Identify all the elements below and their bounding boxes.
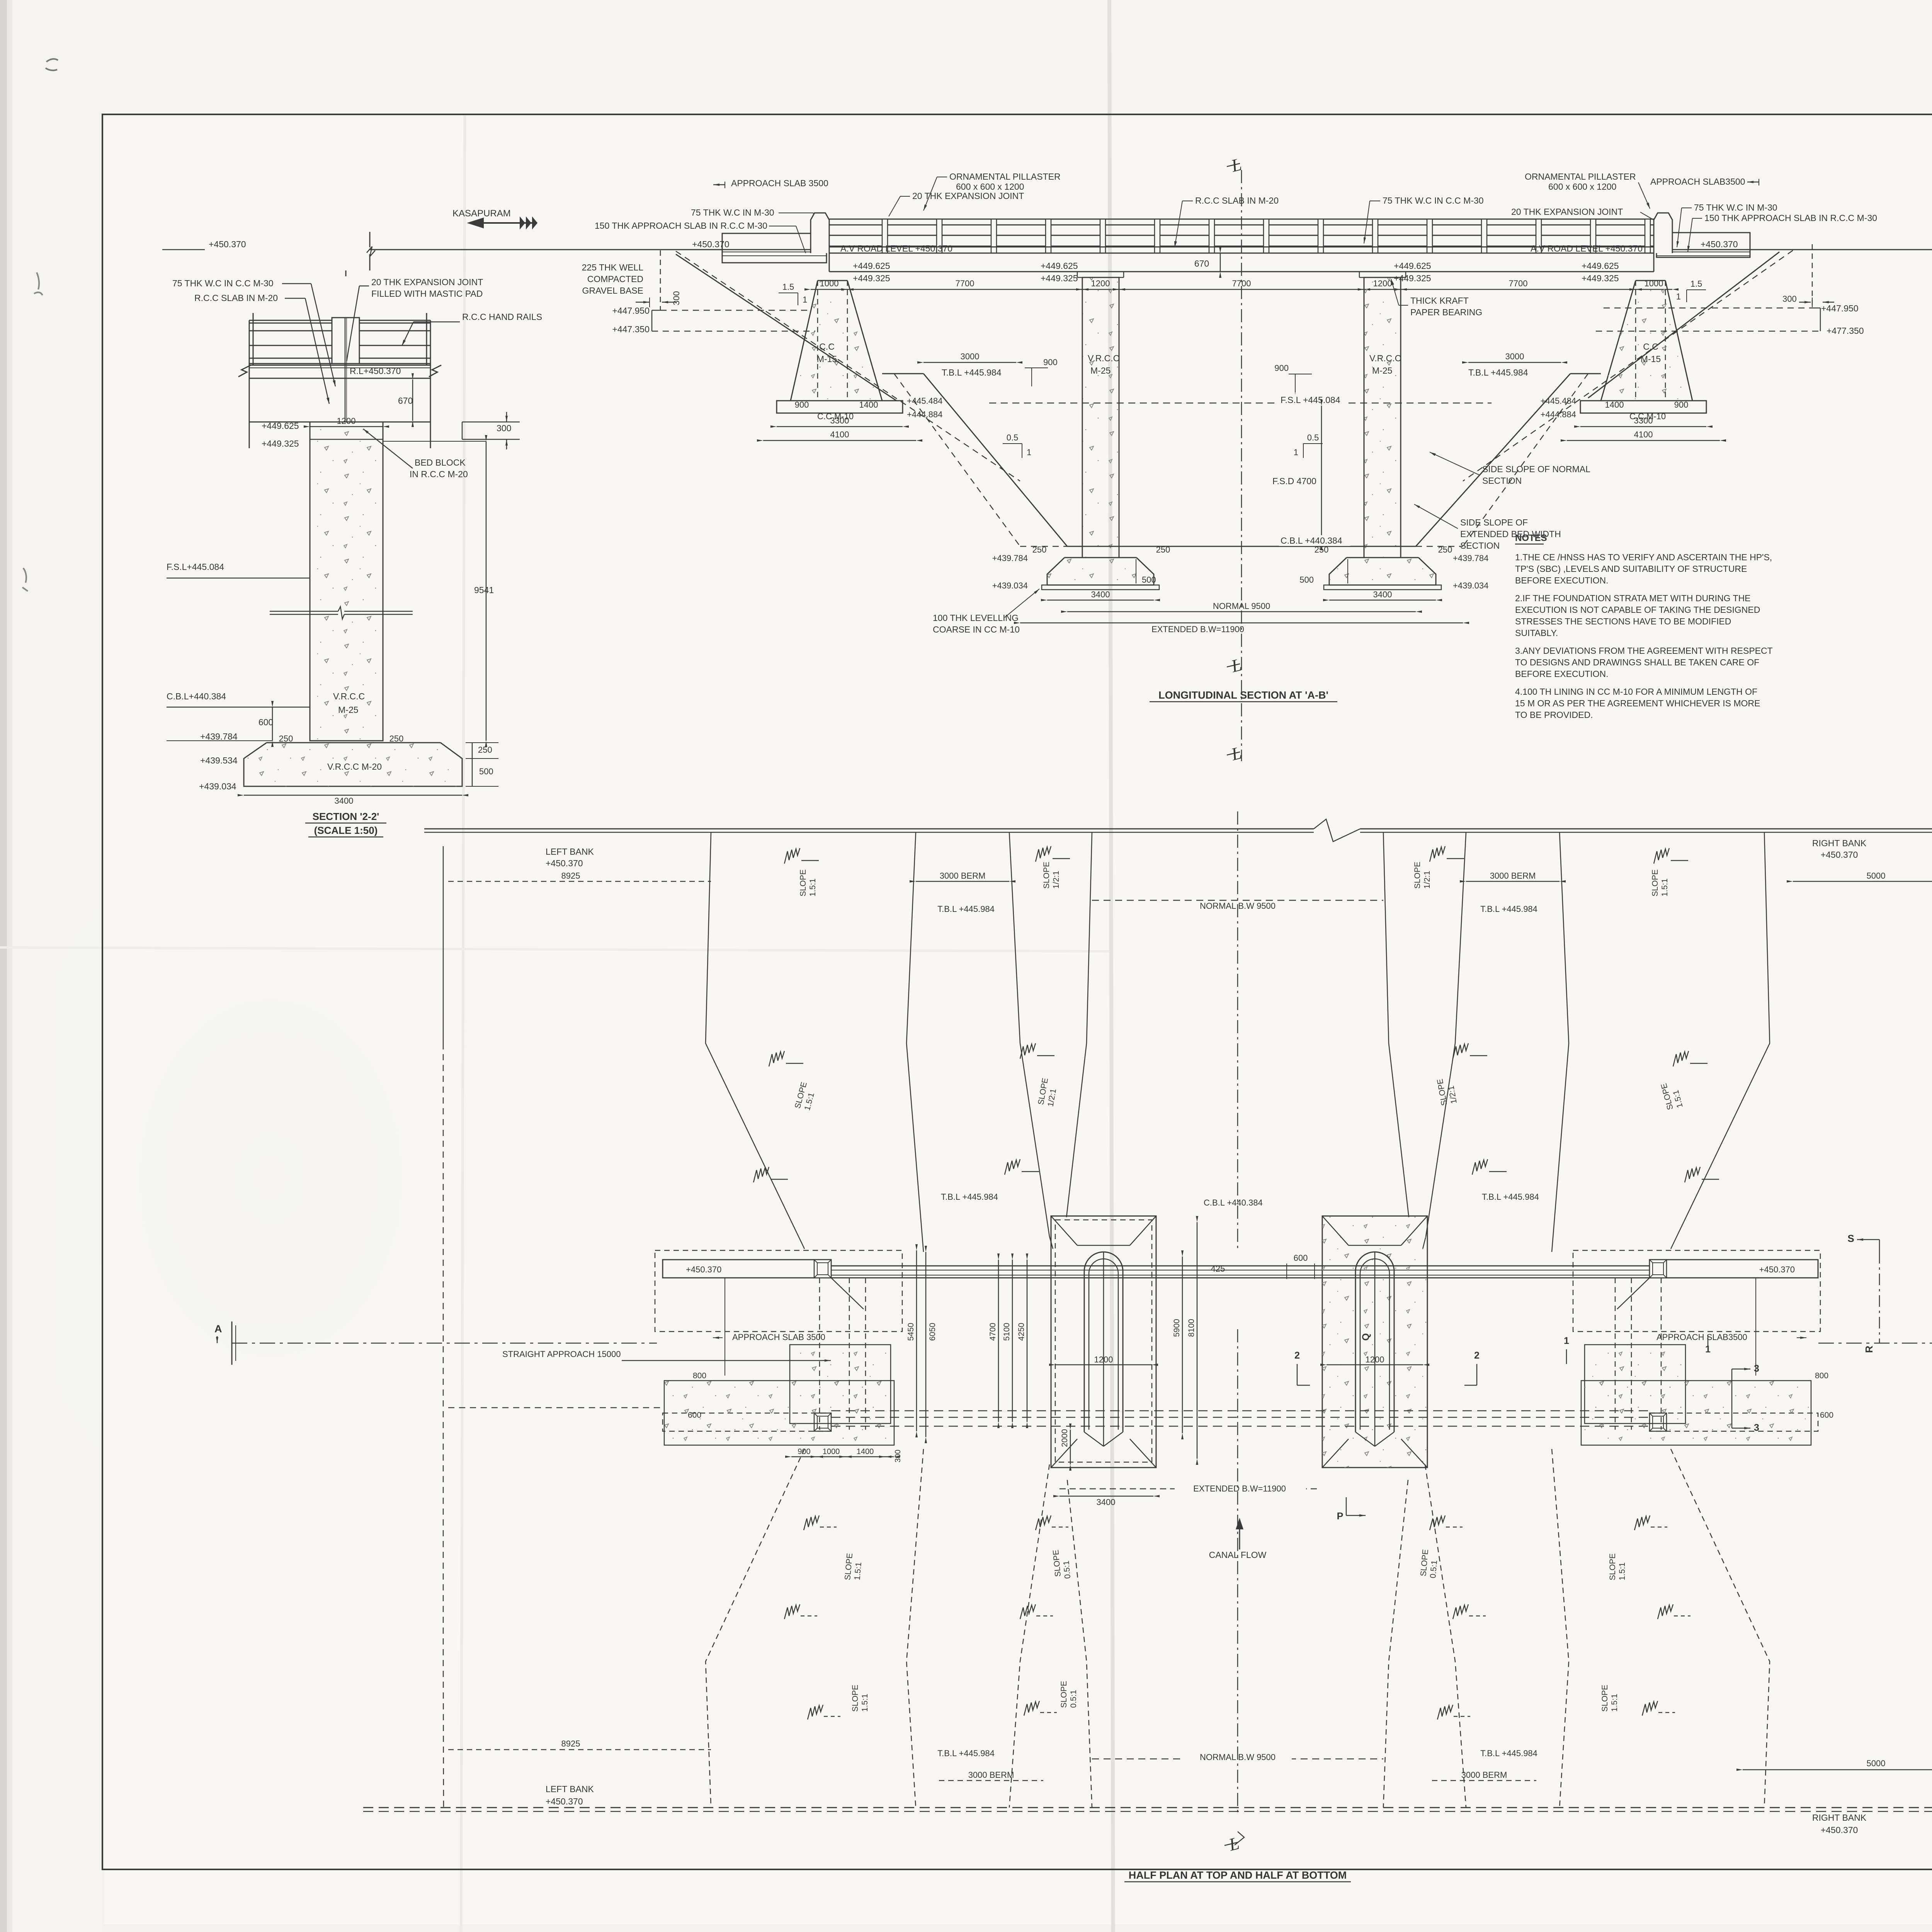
- svg-text:C.C: C.C: [819, 342, 835, 352]
- svg-text:225 THK WELL: 225 THK WELL: [582, 262, 644, 272]
- svg-text:+439.034: +439.034: [992, 581, 1028, 590]
- svg-text:F.S.L +445.084: F.S.L +445.084: [1281, 395, 1340, 405]
- svg-text:LONGITUDINAL SECTION AT 'A-B': LONGITUDINAL SECTION AT 'A-B': [1158, 689, 1328, 701]
- svg-text:M-25: M-25: [1090, 366, 1111, 376]
- svg-text:+450.370: +450.370: [1759, 1265, 1795, 1274]
- svg-text:75 THK W.C IN M-30: 75 THK W.C IN M-30: [691, 207, 774, 218]
- svg-text:8925: 8925: [561, 871, 580, 881]
- svg-text:+439.034: +439.034: [199, 781, 236, 791]
- svg-text:6050: 6050: [928, 1323, 937, 1341]
- svg-text:300: 300: [894, 1450, 902, 1463]
- svg-text:3000 BERM: 3000 BERM: [940, 871, 986, 881]
- svg-text:1200: 1200: [1094, 1355, 1113, 1364]
- svg-text:SIDE SLOPE OF: SIDE SLOPE OF: [1460, 517, 1528, 527]
- svg-text:1/2:1: 1/2:1: [1052, 871, 1061, 889]
- svg-text:3.ANY DEVIATIONS FROM THE AGRE: 3.ANY DEVIATIONS FROM THE AGREEMENT WITH…: [1515, 646, 1773, 656]
- svg-text:+450.370: +450.370: [546, 858, 583, 868]
- svg-text:SLOPE: SLOPE: [1608, 1553, 1617, 1580]
- svg-text:3300: 3300: [1634, 416, 1653, 425]
- svg-text:75 THK W.C IN C.C M-30: 75 THK W.C IN C.C M-30: [1383, 196, 1484, 206]
- svg-text:15 M OR AS PER THE AGREEMENT W: 15 M OR AS PER THE AGREEMENT WHICHEVER I…: [1515, 698, 1760, 708]
- svg-text:5450: 5450: [906, 1323, 915, 1341]
- svg-text:SLOPE: SLOPE: [1600, 1685, 1609, 1712]
- svg-text:+449.625: +449.625: [1041, 261, 1078, 271]
- svg-text:ORNAMENTAL PILLASTER: ORNAMENTAL PILLASTER: [949, 172, 1061, 182]
- svg-text:250: 250: [1032, 545, 1047, 554]
- svg-text:RIGHT BANK: RIGHT BANK: [1812, 838, 1867, 848]
- svg-text:5000: 5000: [1867, 1759, 1886, 1768]
- svg-text:250: 250: [1156, 545, 1170, 554]
- svg-text:150 THK APPROACH SLAB IN R.C.C: 150 THK APPROACH SLAB IN R.C.C M-30: [1704, 213, 1877, 223]
- svg-text:8100: 8100: [1187, 1319, 1196, 1337]
- svg-text:600: 600: [259, 717, 273, 727]
- svg-text:8925: 8925: [561, 1739, 580, 1748]
- svg-text:R.C.C SLAB IN M-20: R.C.C SLAB IN M-20: [1195, 196, 1279, 206]
- svg-text:150 THK APPROACH SLAB IN R.C.C: 150 THK APPROACH SLAB IN R.C.C M-30: [595, 221, 767, 231]
- svg-text:900: 900: [798, 1447, 810, 1456]
- svg-text:900: 900: [1674, 400, 1689, 410]
- svg-text:NOTES: NOTES: [1515, 533, 1547, 543]
- svg-text:1.5:1: 1.5:1: [1618, 1562, 1627, 1580]
- svg-text:1.5:1: 1.5:1: [861, 1694, 869, 1712]
- svg-text:4.100 TH LINING IN CC M-10 FOR: 4.100 TH LINING IN CC M-10 FOR A MINIMUM…: [1515, 687, 1757, 697]
- svg-text:T.B.L +445.984: T.B.L +445.984: [941, 1192, 998, 1202]
- svg-text:APPROACH SLAB3500: APPROACH SLAB3500: [1656, 1332, 1747, 1342]
- svg-text:+439.784: +439.784: [992, 553, 1028, 563]
- svg-text:1/2:1: 1/2:1: [1423, 871, 1432, 889]
- svg-text:600 x 600 x 1200: 600 x 600 x 1200: [1548, 182, 1616, 192]
- svg-text:1.5:1: 1.5:1: [1660, 878, 1669, 896]
- svg-text:RIGHT BANK: RIGHT BANK: [1812, 1813, 1867, 1823]
- svg-text:+450.370: +450.370: [1821, 1825, 1858, 1835]
- svg-text:+445.484: +445.484: [907, 396, 942, 406]
- svg-text:+439.534: +439.534: [200, 755, 238, 765]
- svg-text:600: 600: [1294, 1253, 1308, 1263]
- svg-text:+439.034: +439.034: [1453, 581, 1488, 590]
- svg-text:+449.325: +449.325: [853, 273, 890, 283]
- svg-text:5100: 5100: [1002, 1323, 1011, 1341]
- svg-text:1000: 1000: [823, 1447, 840, 1456]
- svg-text:1: 1: [1564, 1335, 1569, 1346]
- svg-text:TO BE PROVIDED.: TO BE PROVIDED.: [1515, 710, 1593, 720]
- svg-text:TP'S (SBC) ,LEVELS AND SUITABI: TP'S (SBC) ,LEVELS AND SUITABILITY OF ST…: [1515, 564, 1747, 574]
- svg-text:V.R.C.C: V.R.C.C: [1369, 353, 1401, 363]
- svg-text:SLOPE: SLOPE: [851, 1685, 860, 1712]
- svg-text:600 x 600 x 1200: 600 x 600 x 1200: [956, 182, 1024, 192]
- svg-text:3400: 3400: [335, 796, 354, 806]
- svg-text:900: 900: [795, 400, 809, 410]
- svg-text:SLOPE: SLOPE: [1042, 862, 1051, 889]
- svg-text:7700: 7700: [956, 279, 975, 288]
- svg-text:670: 670: [1194, 259, 1209, 269]
- svg-text:75 THK W.C IN C.C M-30: 75 THK W.C IN C.C M-30: [172, 278, 274, 288]
- svg-text:800: 800: [693, 1371, 706, 1380]
- svg-text:500: 500: [1299, 575, 1314, 585]
- svg-text:V.R.C.C M-20: V.R.C.C M-20: [327, 762, 382, 772]
- svg-text:Q: Q: [1361, 1333, 1371, 1340]
- svg-text:SUITABLY.: SUITABLY.: [1515, 628, 1558, 638]
- svg-text:1400: 1400: [1605, 400, 1624, 410]
- svg-text:1200: 1200: [1366, 1355, 1384, 1364]
- svg-text:M-25: M-25: [1372, 366, 1392, 376]
- svg-text:SLOPE: SLOPE: [799, 869, 808, 896]
- svg-text:4100: 4100: [830, 430, 849, 439]
- svg-text:PAPER BEARING: PAPER BEARING: [1410, 307, 1482, 317]
- svg-text:T.B.L +445.984: T.B.L +445.984: [1468, 367, 1528, 378]
- svg-text:300: 300: [497, 423, 511, 433]
- svg-text:5000: 5000: [1867, 871, 1886, 881]
- svg-text:20 THK EXPANSION JOINT: 20 THK EXPANSION JOINT: [371, 277, 483, 287]
- svg-text:+450.370: +450.370: [209, 239, 246, 249]
- svg-text:+449.625: +449.625: [262, 421, 299, 431]
- svg-text:1.5: 1.5: [782, 282, 794, 292]
- svg-text:3000 BERM: 3000 BERM: [1490, 871, 1536, 881]
- svg-text:9541: 9541: [474, 585, 494, 595]
- svg-text:1400: 1400: [859, 400, 878, 410]
- svg-text:+449.325: +449.325: [1582, 273, 1619, 283]
- svg-text:20 THK EXPANSION JOINT: 20 THK EXPANSION JOINT: [912, 191, 1024, 201]
- svg-text:670: 670: [398, 396, 413, 406]
- svg-text:COMPACTED: COMPACTED: [587, 274, 643, 284]
- svg-text:P: P: [1337, 1511, 1344, 1522]
- svg-text:T.B.L +445.984: T.B.L +445.984: [1482, 1192, 1539, 1202]
- svg-text:APPROACH SLAB3500: APPROACH SLAB3500: [1650, 177, 1745, 187]
- svg-text:3000 BERM: 3000 BERM: [968, 1770, 1014, 1780]
- svg-text:R: R: [1863, 1345, 1875, 1353]
- svg-text:250: 250: [1438, 545, 1452, 554]
- svg-text:ORNAMENTAL PILLASTER: ORNAMENTAL PILLASTER: [1525, 172, 1636, 182]
- svg-text:425: 425: [1211, 1264, 1225, 1274]
- svg-text:1.5:1: 1.5:1: [808, 878, 817, 896]
- svg-text:STRAIGHT APPROACH 15000: STRAIGHT APPROACH 15000: [502, 1349, 621, 1359]
- svg-text:600: 600: [688, 1411, 701, 1420]
- svg-text:FILLED WITH MASTIC PAD: FILLED WITH MASTIC PAD: [371, 289, 483, 299]
- svg-text:SECTION: SECTION: [1460, 541, 1500, 551]
- svg-text:V.R.C.C: V.R.C.C: [333, 691, 365, 701]
- svg-text:3000 BERM: 3000 BERM: [1461, 1770, 1507, 1780]
- svg-text:1.5: 1.5: [1690, 279, 1702, 289]
- svg-text:+450.370: +450.370: [1701, 239, 1738, 249]
- svg-text:0.5: 0.5: [1307, 433, 1319, 442]
- svg-text:T.B.L +445.984: T.B.L +445.984: [942, 367, 1002, 378]
- svg-text:EXECUTION IS NOT CAPABLE OF TA: EXECUTION IS NOT CAPABLE OF TAKING THE D…: [1515, 605, 1760, 615]
- svg-text:+450.370: +450.370: [686, 1265, 721, 1274]
- svg-text:1.THE CE /HNSS HAS TO VERIFY A: 1.THE CE /HNSS HAS TO VERIFY AND ASCERTA…: [1515, 552, 1772, 562]
- svg-text:EXTENDED B.W=11900: EXTENDED B.W=11900: [1151, 624, 1244, 634]
- svg-text:SECTION: SECTION: [1482, 476, 1522, 486]
- svg-text:R.L+450.370: R.L+450.370: [350, 366, 401, 376]
- svg-text:1400: 1400: [857, 1447, 874, 1456]
- svg-text:0.5:1: 0.5:1: [1062, 1560, 1072, 1579]
- svg-text:+447.950: +447.950: [612, 306, 650, 316]
- svg-text:KASAPURAM: KASAPURAM: [452, 208, 511, 219]
- svg-text:1.5:1: 1.5:1: [1610, 1694, 1619, 1712]
- svg-text:+450.370: +450.370: [692, 239, 730, 249]
- svg-text:900: 900: [1043, 357, 1058, 367]
- svg-text:+477.350: +477.350: [1827, 326, 1864, 336]
- svg-text:T.B.L +445.984: T.B.L +445.984: [937, 904, 995, 914]
- svg-text:+449.625: +449.625: [853, 261, 890, 271]
- svg-text:3300: 3300: [830, 416, 849, 425]
- svg-text:250: 250: [1315, 545, 1329, 554]
- svg-text:250: 250: [478, 745, 492, 755]
- svg-text:3000: 3000: [961, 352, 980, 361]
- svg-text:2.IF THE FOUNDATION STRATA MET: 2.IF THE FOUNDATION STRATA MET WITH DURI…: [1515, 593, 1751, 603]
- svg-text:+449.625: +449.625: [1394, 261, 1431, 271]
- svg-text:+439.784: +439.784: [200, 731, 238, 742]
- svg-text:HALF PLAN AT TOP AND HALF AT B: HALF PLAN AT TOP AND HALF AT BOTTOM: [1129, 1869, 1347, 1881]
- svg-text:BEFORE EXECUTION.: BEFORE EXECUTION.: [1515, 669, 1609, 679]
- svg-text:STRESSES THE SECTIONS HAVE TO: STRESSES THE SECTIONS HAVE TO BE MODIFIE…: [1515, 616, 1731, 626]
- svg-text:2: 2: [1474, 1350, 1480, 1361]
- svg-text:0.5: 0.5: [1007, 433, 1019, 442]
- svg-text:500: 500: [1142, 575, 1156, 585]
- svg-text:7700: 7700: [1509, 279, 1528, 288]
- svg-text:SLOPE: SLOPE: [1651, 869, 1660, 896]
- svg-text:2: 2: [1294, 1350, 1300, 1361]
- svg-text:SECTION '2-2': SECTION '2-2': [313, 811, 379, 822]
- svg-text:SLOPE: SLOPE: [1413, 862, 1422, 889]
- svg-text:C.B.L+440.384: C.B.L+440.384: [167, 691, 226, 701]
- svg-text:A.V ROAD LEVEL +450.370: A.V ROAD LEVEL +450.370: [840, 243, 952, 253]
- svg-text:R.C.C SLAB IN M-20: R.C.C SLAB IN M-20: [194, 293, 278, 303]
- svg-text:R.C.C HAND RAILS: R.C.C HAND RAILS: [462, 312, 542, 322]
- svg-text:1: 1: [803, 295, 807, 304]
- svg-text:3400: 3400: [1373, 590, 1392, 599]
- svg-text:3400: 3400: [1097, 1497, 1116, 1507]
- svg-text:+449.325: +449.325: [262, 439, 299, 449]
- svg-text:20 THK EXPANSION JOINT: 20 THK EXPANSION JOINT: [1511, 207, 1623, 217]
- svg-text:1.5:1: 1.5:1: [853, 1562, 863, 1581]
- svg-text:1: 1: [1294, 447, 1298, 457]
- svg-text:+447.950: +447.950: [1821, 303, 1859, 313]
- svg-text:2000: 2000: [1060, 1429, 1069, 1447]
- svg-text:IN R.C.C M-20: IN R.C.C M-20: [410, 469, 468, 479]
- svg-text:COARSE IN CC M-10: COARSE IN CC M-10: [933, 624, 1020, 634]
- svg-text:C.B.L +440.384: C.B.L +440.384: [1281, 536, 1342, 546]
- svg-text:+444.884: +444.884: [907, 410, 942, 419]
- svg-text:SLOPE: SLOPE: [1060, 1681, 1068, 1708]
- svg-text:4250: 4250: [1017, 1323, 1026, 1341]
- svg-text:+449.325: +449.325: [1041, 273, 1078, 283]
- svg-text:+450.370: +450.370: [546, 1796, 583, 1806]
- svg-text:M-25: M-25: [338, 705, 358, 715]
- svg-text:3400: 3400: [1091, 590, 1110, 599]
- svg-text:APPROACH SLAB 3500: APPROACH SLAB 3500: [731, 178, 828, 188]
- svg-text:EXTENDED B.W=11900: EXTENDED B.W=11900: [1193, 1484, 1286, 1493]
- svg-text:T.B.L +445.984: T.B.L +445.984: [1480, 904, 1537, 914]
- svg-text:THICK KRAFT: THICK KRAFT: [1410, 296, 1469, 306]
- svg-text:+447.350: +447.350: [612, 324, 650, 334]
- svg-text:0.5:1: 0.5:1: [1069, 1690, 1078, 1708]
- svg-text:V.R.C.C: V.R.C.C: [1088, 353, 1119, 363]
- svg-text:BED BLOCK: BED BLOCK: [415, 457, 466, 468]
- svg-text:900: 900: [1274, 363, 1289, 373]
- svg-text:600: 600: [1820, 1411, 1833, 1420]
- svg-text:250: 250: [389, 734, 404, 743]
- svg-text:A: A: [214, 1323, 222, 1335]
- svg-text:F.S.L+445.084: F.S.L+445.084: [167, 562, 224, 572]
- svg-text:+449.625: +449.625: [1582, 261, 1619, 271]
- svg-text:3: 3: [1754, 1422, 1759, 1433]
- svg-text:250: 250: [279, 734, 293, 743]
- svg-text:(SCALE 1:50): (SCALE 1:50): [314, 825, 378, 836]
- svg-text:3: 3: [1754, 1363, 1759, 1374]
- svg-text:GRAVEL BASE: GRAVEL BASE: [582, 286, 643, 296]
- svg-text:1: 1: [1027, 447, 1031, 457]
- svg-text:75 THK W.C IN M-30: 75 THK W.C IN M-30: [1694, 202, 1777, 213]
- svg-text:A.V ROAD LEVEL +450.370: A.V ROAD LEVEL +450.370: [1531, 243, 1643, 253]
- svg-text:BEFORE EXECUTION.: BEFORE EXECUTION.: [1515, 575, 1609, 585]
- svg-text:SIDE SLOPE OF NORMAL: SIDE SLOPE OF NORMAL: [1482, 464, 1590, 474]
- svg-text:S: S: [1847, 1233, 1854, 1244]
- svg-text:LEFT BANK: LEFT BANK: [546, 847, 594, 857]
- svg-text:+450.370: +450.370: [1821, 850, 1858, 860]
- svg-text:F.S.D 4700: F.S.D 4700: [1272, 476, 1316, 486]
- svg-text:+439.784: +439.784: [1453, 553, 1488, 563]
- svg-text:APPROACH SLAB 3500: APPROACH SLAB 3500: [732, 1332, 825, 1342]
- svg-text:500: 500: [479, 767, 493, 776]
- svg-text:4100: 4100: [1634, 430, 1653, 439]
- svg-text:TO DESIGNS AND DRAWINGS SHALL: TO DESIGNS AND DRAWINGS SHALL BE TAKEN C…: [1515, 657, 1759, 667]
- svg-text:300: 300: [672, 291, 681, 305]
- svg-text:3000: 3000: [1505, 352, 1524, 361]
- svg-text:800: 800: [1815, 1371, 1828, 1380]
- svg-text:4700: 4700: [988, 1323, 997, 1341]
- svg-text:5900: 5900: [1172, 1319, 1181, 1337]
- svg-text:T.B.L +445.984: T.B.L +445.984: [1480, 1748, 1537, 1758]
- svg-text:T.B.L +445.984: T.B.L +445.984: [937, 1748, 995, 1758]
- svg-text:0.5:1: 0.5:1: [1429, 1560, 1439, 1579]
- svg-text:1: 1: [1676, 292, 1681, 301]
- svg-text:LEFT BANK: LEFT BANK: [546, 1784, 594, 1794]
- svg-text:300: 300: [1782, 294, 1797, 304]
- svg-text:100 THK LEVELLING: 100 THK LEVELLING: [933, 613, 1019, 623]
- svg-text:C.B.L +440.384: C.B.L +440.384: [1204, 1198, 1263, 1207]
